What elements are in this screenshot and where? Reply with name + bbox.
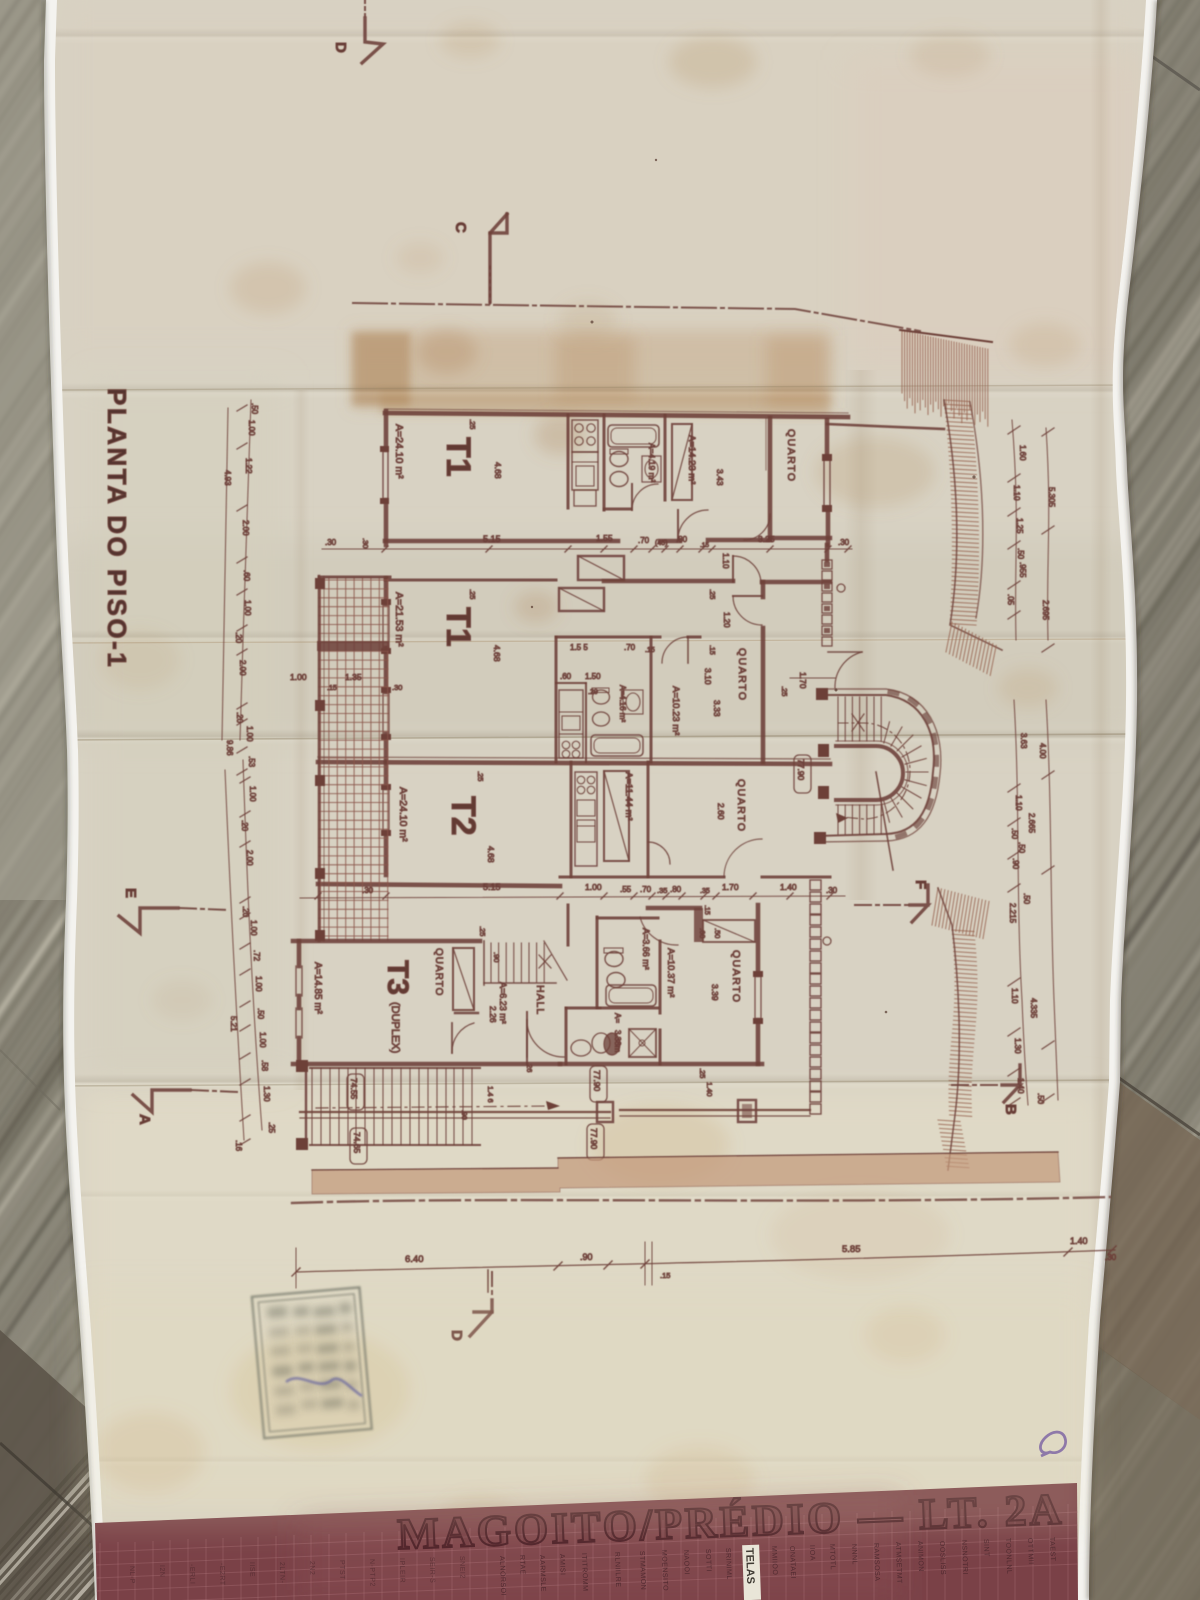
svg-text:STMAMON: STMAMON bbox=[638, 1551, 646, 1591]
svg-text:1.10: 1.10 bbox=[1014, 795, 1023, 811]
svg-text:MMIIOO: MMIIOO bbox=[770, 1546, 778, 1576]
svg-text:TOONLNL: TOONLNL bbox=[1004, 1538, 1012, 1575]
svg-text:.70: .70 bbox=[638, 536, 650, 545]
svg-text:.72: .72 bbox=[252, 950, 261, 962]
svg-text:NL-P: NL-P bbox=[128, 1566, 135, 1584]
svg-text:(DUPLEX): (DUPLEX) bbox=[389, 1002, 401, 1053]
svg-text:.50: .50 bbox=[256, 1008, 265, 1020]
svg-text:1.70: 1.70 bbox=[722, 882, 739, 892]
svg-text:A=3.66 m²: A=3.66 m² bbox=[641, 928, 651, 970]
svg-text:2.695: 2.695 bbox=[1041, 600, 1050, 621]
svg-text:ITITROMM: ITITROMM bbox=[580, 1553, 588, 1592]
svg-text:QUARTO: QUARTO bbox=[730, 950, 742, 1004]
svg-text:NSNOTRI: NSNOTRI bbox=[960, 1540, 968, 1575]
svg-text:1.22: 1.22 bbox=[244, 458, 253, 474]
svg-text:.35: .35 bbox=[657, 886, 667, 895]
svg-text:3.43: 3.43 bbox=[715, 469, 725, 486]
svg-text:1.00: 1.00 bbox=[254, 976, 263, 992]
svg-text:1.00: 1.00 bbox=[258, 1032, 267, 1048]
svg-text:TAEST: TAEST bbox=[1048, 1537, 1056, 1562]
svg-text:1.30: 1.30 bbox=[262, 1086, 271, 1102]
svg-text:.50: .50 bbox=[1016, 548, 1025, 560]
svg-text:OTTMII: OTTMII bbox=[1026, 1538, 1034, 1565]
svg-text:.25: .25 bbox=[476, 771, 485, 781]
svg-text:.30: .30 bbox=[1105, 1253, 1117, 1262]
svg-text:.60: .60 bbox=[560, 672, 572, 681]
svg-text:I2N: I2N bbox=[158, 1565, 165, 1578]
svg-text:SRINIML: SRINIML bbox=[724, 1548, 732, 1580]
svg-text:T1: T1 bbox=[439, 437, 477, 477]
svg-text:A=4.16 m²: A=4.16 m² bbox=[618, 685, 627, 722]
svg-text:.15: .15 bbox=[703, 905, 710, 915]
svg-text:1.20: 1.20 bbox=[722, 612, 731, 628]
svg-text:1.40: 1.40 bbox=[705, 1082, 714, 1097]
svg-text:OOSLISS: OOSLISS bbox=[938, 1541, 946, 1575]
svg-text:.53: .53 bbox=[247, 756, 256, 768]
svg-text:9.86: 9.86 bbox=[225, 740, 234, 756]
svg-text:.80: .80 bbox=[676, 535, 688, 544]
svg-text:1.10: 1.10 bbox=[1010, 988, 1019, 1004]
svg-text:AARMSLE: AARMSLE bbox=[538, 1555, 546, 1592]
svg-text:A=24.10 m²: A=24.10 m² bbox=[397, 787, 409, 842]
svg-text:PTST: PTST bbox=[338, 1560, 345, 1580]
svg-text:.25: .25 bbox=[468, 419, 477, 429]
svg-text:ONATAEI: ONATAEI bbox=[788, 1546, 796, 1579]
svg-text:1.30: 1.30 bbox=[1013, 1038, 1022, 1054]
svg-text:4.335: 4.335 bbox=[1029, 998, 1038, 1019]
svg-text:SNEI2: SNEI2 bbox=[458, 1556, 465, 1579]
svg-text:1.10: 1.10 bbox=[721, 553, 730, 569]
svg-text:1.40: 1.40 bbox=[1070, 1236, 1088, 1246]
svg-text:A=6.23 m²: A=6.23 m² bbox=[498, 982, 508, 1024]
svg-text:T3: T3 bbox=[381, 960, 414, 995]
svg-text:1.5 5: 1.5 5 bbox=[570, 643, 588, 652]
svg-text:RTAE: RTAE bbox=[518, 1555, 526, 1575]
svg-text:.20: .20 bbox=[588, 689, 598, 696]
svg-text:.26: .26 bbox=[525, 1062, 534, 1072]
svg-text:B: B bbox=[1002, 1104, 1019, 1115]
svg-text:2.665: 2.665 bbox=[1027, 813, 1036, 834]
svg-text:A: A bbox=[136, 1114, 153, 1125]
svg-text:.60: .60 bbox=[242, 570, 251, 582]
svg-text:4.68: 4.68 bbox=[492, 645, 502, 662]
svg-text:.25: .25 bbox=[478, 926, 487, 936]
svg-text:2.00: 2.00 bbox=[238, 660, 247, 676]
svg-text:4.68: 4.68 bbox=[486, 846, 496, 863]
svg-text:AMISI: AMISI bbox=[558, 1554, 566, 1576]
svg-text:.50: .50 bbox=[1036, 1093, 1045, 1105]
svg-text:.90: .90 bbox=[460, 1110, 467, 1120]
svg-text:5.21: 5.21 bbox=[229, 1016, 238, 1032]
svg-text:NAOOI: NAOOI bbox=[682, 1550, 690, 1575]
svg-text:3.38m: 3.38m bbox=[613, 1030, 622, 1053]
svg-text:1.40: 1.40 bbox=[780, 882, 797, 892]
svg-text:.58: .58 bbox=[260, 1060, 269, 1072]
svg-text:.30: .30 bbox=[325, 538, 337, 547]
svg-text:IIOA: IIOA bbox=[808, 1545, 816, 1561]
svg-text:QUARTO: QUARTO bbox=[736, 648, 748, 702]
svg-text:1.00: 1.00 bbox=[247, 420, 256, 436]
svg-text:77.90: 77.90 bbox=[592, 1070, 602, 1092]
svg-text:6.40: 6.40 bbox=[405, 1254, 424, 1265]
svg-text:2LTN-: 2LTN- bbox=[278, 1562, 285, 1584]
svg-text:3.33: 3.33 bbox=[712, 700, 722, 717]
svg-text:2N2: 2N2 bbox=[308, 1561, 315, 1575]
svg-text:.50: .50 bbox=[1022, 893, 1031, 905]
svg-text:74.55: 74.55 bbox=[349, 1078, 359, 1100]
svg-text:.50: .50 bbox=[250, 403, 259, 415]
svg-text:A=4.19 m²: A=4.19 m² bbox=[647, 443, 657, 483]
svg-text:MOENSITO: MOENSITO bbox=[660, 1550, 668, 1591]
svg-text:.70: .70 bbox=[624, 643, 636, 652]
svg-text:77.90: 77.90 bbox=[589, 1128, 599, 1150]
svg-text:-ERLI: -ERLI bbox=[188, 1564, 195, 1585]
svg-text:ALNORSOI: ALNORSOI bbox=[498, 1556, 506, 1596]
svg-text:1.60: 1.60 bbox=[1018, 445, 1027, 461]
svg-text:A=11.44 m²: A=11.44 m² bbox=[623, 772, 634, 821]
svg-text:HALL: HALL bbox=[534, 985, 546, 1015]
svg-text:1.00: 1.00 bbox=[243, 600, 252, 616]
svg-text:.35: .35 bbox=[700, 888, 710, 895]
svg-text:1.4 6: 1.4 6 bbox=[486, 1086, 495, 1103]
svg-text:.25: .25 bbox=[780, 686, 789, 696]
svg-text:A=14.23 m²: A=14.23 m² bbox=[686, 435, 697, 484]
svg-text:QUARTO: QUARTO bbox=[785, 429, 797, 483]
svg-text:1.00: 1.00 bbox=[248, 786, 257, 802]
svg-text:A=10.23 m²: A=10.23 m² bbox=[670, 686, 681, 735]
svg-text:77.90: 77.90 bbox=[796, 759, 806, 781]
svg-text:5.15: 5.15 bbox=[483, 534, 501, 544]
svg-text:.15: .15 bbox=[645, 647, 655, 654]
svg-text:.25: .25 bbox=[267, 1122, 276, 1134]
svg-text:N-PTP2: N-PTP2 bbox=[368, 1559, 375, 1587]
svg-text:.50: .50 bbox=[713, 928, 722, 938]
svg-text:TELAS: TELAS bbox=[743, 1548, 756, 1584]
svg-text:.70: .70 bbox=[640, 885, 652, 894]
svg-text:2.60: 2.60 bbox=[716, 803, 726, 820]
svg-text:A=10.37 m²: A=10.37 m² bbox=[665, 948, 676, 997]
svg-text:4.00: 4.00 bbox=[1038, 743, 1047, 759]
svg-text:T2: T2 bbox=[444, 796, 482, 836]
svg-text:.955: .955 bbox=[1018, 562, 1027, 578]
svg-text:.25: .25 bbox=[698, 1068, 707, 1078]
svg-text:5.15: 5.15 bbox=[483, 882, 501, 892]
svg-text:A=: A= bbox=[613, 1013, 622, 1023]
svg-text:PLANTA DO PISO-1: PLANTA DO PISO-1 bbox=[102, 388, 132, 669]
svg-text:.25: .25 bbox=[708, 589, 717, 599]
svg-text:.25: .25 bbox=[468, 589, 477, 599]
svg-text:.15: .15 bbox=[700, 542, 709, 549]
svg-text:.30: .30 bbox=[826, 886, 838, 895]
svg-text:A=14.85 m²: A=14.85 m² bbox=[312, 962, 323, 1015]
svg-text:T1: T1 bbox=[439, 607, 477, 647]
svg-text:1.10: 1.10 bbox=[1012, 485, 1021, 501]
svg-text:.30: .30 bbox=[392, 683, 402, 692]
svg-text:1.00: 1.00 bbox=[249, 920, 258, 936]
svg-text:1.25: 1.25 bbox=[1015, 518, 1024, 534]
svg-text:D: D bbox=[332, 42, 349, 53]
svg-text:QUARTO: QUARTO bbox=[433, 948, 444, 996]
svg-text:.15: .15 bbox=[708, 645, 715, 655]
svg-text:.30: .30 bbox=[838, 538, 850, 547]
svg-text:74.65: 74.65 bbox=[352, 1132, 362, 1154]
svg-text:1.50: 1.50 bbox=[585, 672, 601, 681]
svg-text:.05: .05 bbox=[1006, 594, 1015, 606]
svg-text:3.10: 3.10 bbox=[703, 668, 713, 685]
svg-text:2.00: 2.00 bbox=[241, 520, 250, 536]
svg-text:SINT: SINT bbox=[982, 1539, 990, 1557]
svg-text:A=24.10 m²: A=24.10 m² bbox=[393, 424, 405, 479]
svg-text:.90: .90 bbox=[1011, 858, 1020, 870]
svg-text:.90: .90 bbox=[492, 952, 501, 962]
svg-text:IPLEIR: IPLEIR bbox=[398, 1558, 405, 1583]
svg-text:E: E bbox=[122, 888, 139, 898]
svg-text:1.00: 1.00 bbox=[290, 672, 307, 682]
svg-text:2.26: 2.26 bbox=[488, 1006, 498, 1023]
svg-text:1.70: 1.70 bbox=[798, 672, 808, 689]
svg-text:3.25: 3.25 bbox=[758, 534, 775, 544]
svg-text:ATMSETMT: ATMSETMT bbox=[894, 1542, 902, 1584]
svg-text:5.85: 5.85 bbox=[842, 1244, 861, 1255]
svg-text:.15: .15 bbox=[327, 685, 337, 692]
svg-text:C: C bbox=[452, 222, 469, 233]
svg-text:A=21.53 m²: A=21.53 m² bbox=[393, 592, 405, 647]
svg-text:1.35: 1.35 bbox=[345, 672, 362, 682]
svg-text:.20: .20 bbox=[240, 820, 249, 832]
svg-text:.50: .50 bbox=[1010, 828, 1019, 840]
svg-text:SEIR-S: SEIR-S bbox=[428, 1557, 435, 1583]
svg-text:RLNIILRE: RLNIILRE bbox=[613, 1552, 621, 1588]
svg-text:.15: .15 bbox=[660, 1271, 670, 1280]
svg-text:.55: .55 bbox=[620, 885, 632, 894]
svg-text:4.93: 4.93 bbox=[223, 470, 232, 486]
svg-text:2.215: 2.215 bbox=[1008, 903, 1017, 924]
svg-text:.16: .16 bbox=[234, 1140, 243, 1152]
svg-text:.20: .20 bbox=[234, 632, 243, 644]
svg-text:MTOTL: MTOTL bbox=[828, 1544, 836, 1570]
svg-text:1.00: 1.00 bbox=[245, 726, 254, 742]
svg-text:5.305: 5.305 bbox=[1047, 487, 1056, 508]
svg-text:3.63: 3.63 bbox=[1019, 733, 1028, 749]
svg-text:F: F bbox=[912, 880, 929, 889]
svg-text:ANIMON: ANIMON bbox=[916, 1541, 924, 1572]
svg-text:IISE: IISE bbox=[248, 1562, 255, 1577]
svg-text:1.00: 1.00 bbox=[585, 882, 602, 892]
svg-text:2.00: 2.00 bbox=[245, 850, 254, 866]
svg-text:.90: .90 bbox=[580, 1252, 593, 1262]
svg-text:(45): (45) bbox=[655, 540, 667, 547]
svg-text:-E2RT: -E2RT bbox=[218, 1563, 225, 1586]
svg-text:QUARTO: QUARTO bbox=[735, 779, 747, 833]
svg-text:SOTTI: SOTTI bbox=[704, 1549, 712, 1572]
svg-text:4.68: 4.68 bbox=[493, 462, 503, 479]
svg-text:3.39: 3.39 bbox=[710, 984, 720, 1001]
svg-text:.30: .30 bbox=[361, 538, 370, 548]
svg-text:NNNL: NNNL bbox=[850, 1544, 858, 1565]
svg-text:1.55: 1.55 bbox=[596, 533, 613, 543]
svg-text:.30: .30 bbox=[362, 886, 374, 895]
svg-text:.80: .80 bbox=[670, 885, 682, 894]
svg-text:RAMSOSA: RAMSOSA bbox=[872, 1543, 880, 1582]
